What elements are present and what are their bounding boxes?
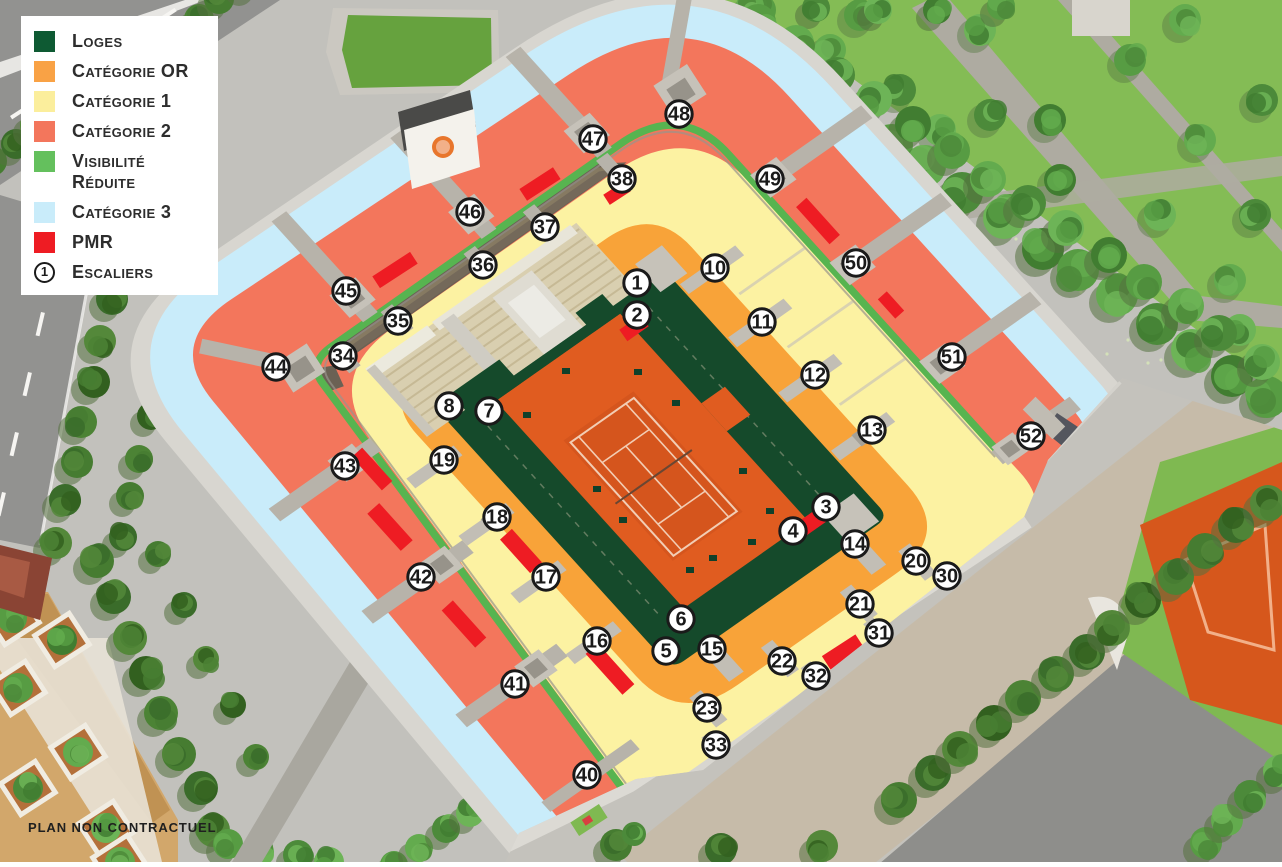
svg-text:31: 31 (868, 623, 890, 645)
svg-text:6: 6 (675, 609, 686, 631)
svg-text:32: 32 (805, 666, 827, 688)
svg-text:36: 36 (472, 255, 494, 277)
svg-text:2: 2 (631, 305, 642, 327)
svg-text:52: 52 (1020, 426, 1042, 448)
svg-text:21: 21 (849, 594, 871, 616)
svg-text:49: 49 (759, 169, 781, 191)
svg-text:14: 14 (844, 534, 867, 556)
svg-text:45: 45 (335, 281, 357, 303)
svg-text:41: 41 (504, 674, 526, 696)
svg-text:47: 47 (582, 129, 604, 151)
svg-text:33: 33 (705, 735, 727, 757)
svg-text:7: 7 (483, 401, 494, 423)
svg-text:15: 15 (701, 639, 723, 661)
svg-text:42: 42 (410, 567, 432, 589)
svg-text:12: 12 (804, 365, 826, 387)
svg-text:11: 11 (751, 312, 772, 334)
svg-text:1: 1 (631, 273, 642, 295)
svg-text:44: 44 (265, 357, 288, 379)
svg-text:22: 22 (771, 651, 793, 673)
svg-text:18: 18 (486, 507, 508, 529)
svg-text:17: 17 (535, 567, 557, 589)
svg-text:48: 48 (668, 104, 690, 126)
svg-text:8: 8 (443, 396, 454, 418)
svg-text:40: 40 (576, 765, 598, 787)
svg-text:10: 10 (704, 258, 726, 280)
svg-text:19: 19 (433, 450, 455, 472)
svg-text:4: 4 (787, 521, 799, 543)
svg-text:13: 13 (861, 420, 883, 442)
svg-text:38: 38 (611, 169, 633, 191)
svg-text:5: 5 (660, 641, 671, 663)
svg-text:20: 20 (905, 551, 927, 573)
svg-text:16: 16 (586, 631, 608, 653)
svg-text:3: 3 (820, 497, 831, 519)
svg-text:50: 50 (845, 253, 867, 275)
svg-text:43: 43 (334, 456, 356, 478)
svg-text:23: 23 (696, 698, 718, 720)
svg-text:51: 51 (941, 347, 963, 369)
svg-text:30: 30 (936, 566, 958, 588)
svg-text:34: 34 (332, 346, 355, 368)
svg-text:46: 46 (459, 202, 481, 224)
svg-text:35: 35 (387, 311, 409, 333)
svg-text:37: 37 (534, 217, 556, 239)
